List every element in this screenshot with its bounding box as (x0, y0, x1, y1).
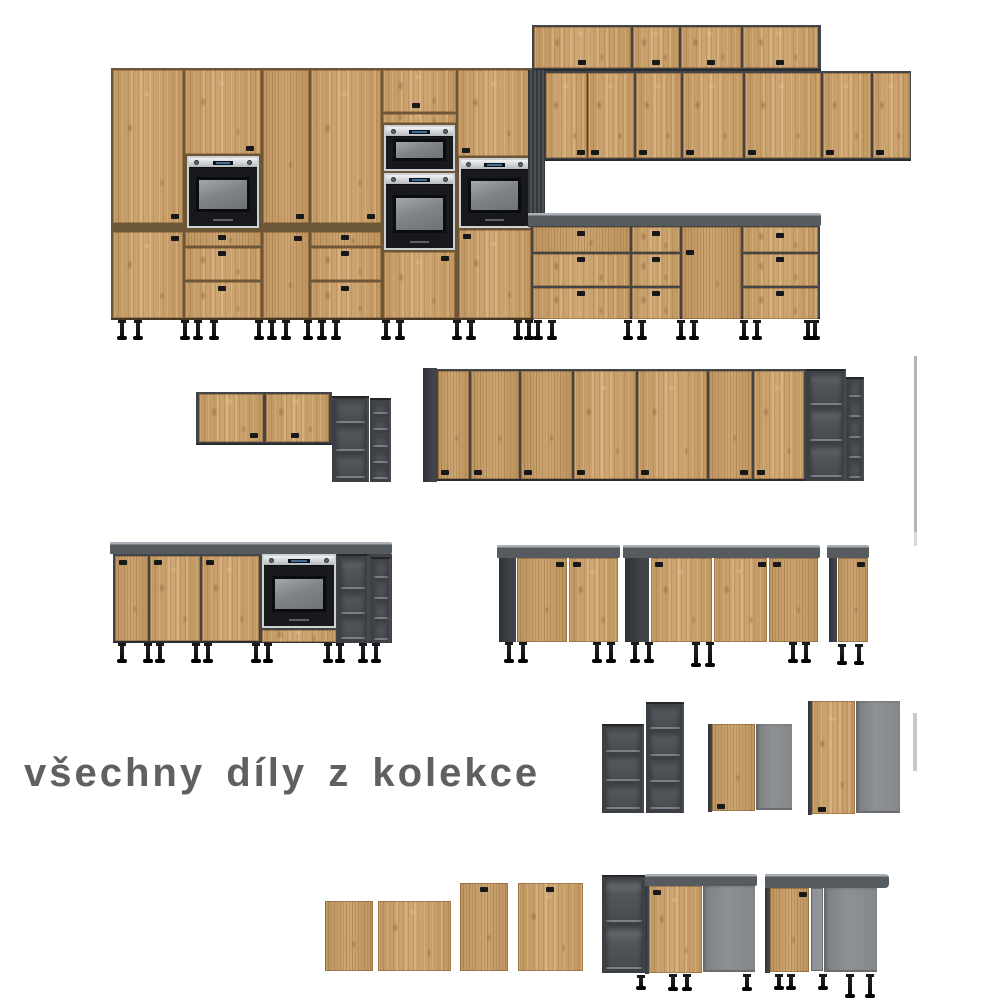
oven-knob (391, 177, 396, 182)
cabinet-leg (685, 974, 689, 988)
cabinet-leg (745, 974, 749, 988)
oven-knob (518, 162, 523, 167)
door-handle (591, 150, 599, 155)
wall-cabinet-door (588, 73, 634, 158)
oven-brand-mark (485, 219, 504, 221)
cabinet-leg (626, 320, 630, 337)
countertop (497, 545, 620, 558)
shelf-compartment (606, 785, 640, 809)
door-handle (857, 562, 865, 567)
cabinet-leg (595, 642, 599, 660)
drawer-handle (577, 291, 585, 296)
cabinet-leg (254, 643, 258, 660)
cabinet-leg (374, 643, 378, 660)
door-front-panel (378, 901, 451, 971)
built-in-oven (459, 158, 530, 228)
cabinet-leg (212, 320, 216, 337)
door-handle (577, 470, 585, 475)
cabinet-leg (196, 320, 200, 337)
shelf-compartment (810, 445, 842, 477)
door-handle (655, 562, 663, 567)
wall-cabinet-door (471, 371, 519, 479)
tall-cabinet-door (458, 70, 531, 156)
countertop (528, 213, 821, 226)
cabinet-leg (813, 320, 817, 337)
countertop (827, 545, 869, 558)
built-in-oven (262, 554, 336, 628)
cabinet-leg (536, 320, 540, 337)
shelf-compartment (650, 706, 680, 729)
oven-glass-door (196, 177, 249, 212)
shelf-compartment (373, 417, 388, 430)
wall-cabinet-door (823, 73, 871, 158)
oven-housing-filler (383, 114, 456, 123)
door-handle (556, 562, 564, 567)
door-handle (799, 892, 807, 897)
tall-cabinet-lower-door (459, 230, 531, 318)
door-handle (412, 103, 420, 108)
door-handle (578, 60, 586, 65)
shelf-compartment (336, 427, 365, 450)
cabinet-leg (609, 642, 613, 660)
shelf-compartment (849, 420, 861, 437)
wall-cabinet-door (873, 73, 910, 158)
shelf-compartment (341, 558, 365, 589)
corner-base-cabinet-body (824, 888, 877, 972)
cabinet-leg (361, 643, 365, 660)
door-handle (246, 146, 254, 151)
door-handle (757, 470, 765, 475)
door-handle (171, 236, 179, 241)
cabinet-leg (647, 642, 651, 660)
cabinet-leg (791, 642, 795, 660)
countertop (765, 874, 889, 888)
base-cabinet-door (838, 558, 868, 642)
cabinet-leg (136, 320, 140, 337)
door-handle (524, 470, 532, 475)
door-handle (707, 60, 715, 65)
cabinet-leg (206, 643, 210, 660)
open-shelf-unit (602, 724, 644, 813)
corner-cubby-unit (370, 398, 391, 482)
cropped-panel-edge (914, 356, 917, 532)
door-handle (773, 562, 781, 567)
oven-display (409, 178, 430, 182)
wall-cabinet-door (745, 73, 821, 158)
cabinet-leg (306, 320, 310, 337)
oven-knob (391, 129, 396, 134)
open-shelf-unit (806, 369, 846, 481)
oven-display (484, 163, 505, 167)
tall-cabinet-lower-door (263, 232, 309, 318)
corner-wall-cabinet-door (712, 724, 755, 811)
cabinet-leg (516, 320, 520, 337)
door-handle (826, 150, 834, 155)
drawer-handle (652, 231, 660, 236)
corner-cubby-unit (846, 377, 864, 481)
shelf-compartment (373, 401, 388, 414)
drawer-front (743, 227, 818, 252)
cropped-panel-edge (914, 532, 917, 546)
oven-control-panel (461, 160, 528, 170)
oven-knob (443, 129, 448, 134)
built-in-oven (384, 173, 455, 250)
cabinet-leg (521, 642, 525, 660)
cabinet-leg (806, 320, 810, 337)
base-cabinet-door (517, 558, 567, 642)
cabinet-leg (334, 320, 338, 337)
oven-knob (194, 160, 199, 165)
cabinet-leg (671, 974, 675, 988)
door-handle (296, 214, 304, 219)
door-handle (740, 470, 748, 475)
door-handle (686, 250, 694, 255)
shelf-compartment (810, 373, 842, 405)
tall-cabinet-door (311, 70, 381, 223)
built-in-oven (187, 156, 259, 228)
wall-cabinet-door (438, 371, 469, 479)
door-handle (463, 234, 471, 239)
base-cabinet-door (651, 558, 712, 642)
caption-text: všechny díly z kolekce (24, 751, 540, 796)
door-handle (441, 470, 449, 475)
door-handle (474, 470, 482, 475)
door-front-panel (325, 901, 373, 971)
door-handle (171, 214, 179, 219)
shelf-compartment (849, 400, 861, 417)
wall-cabinet-door (709, 371, 752, 479)
base-cabinet-side-panel (625, 558, 649, 642)
cabinet-leg (120, 643, 124, 660)
oven-control-panel (264, 556, 334, 566)
tall-cabinet-door (263, 70, 309, 223)
cabinet-leg (194, 643, 198, 660)
shelf-compartment (374, 622, 388, 640)
oven-knob (324, 558, 329, 563)
oven-knob (247, 160, 252, 165)
oven-knob (269, 558, 274, 563)
cabinet-leg (270, 320, 274, 337)
wall-cabinet-side-panel (528, 70, 545, 227)
cabinet-leg (120, 320, 124, 337)
drawer-handle (776, 233, 784, 238)
shelf-compartment (650, 733, 680, 756)
countertop (645, 874, 757, 886)
cabinet-leg (183, 320, 187, 337)
drawer-handle (341, 235, 349, 240)
cabinet-leg (320, 320, 324, 337)
door-handle (573, 562, 581, 567)
cabinet-leg (708, 642, 712, 664)
door-handle (758, 562, 766, 567)
cabinet-leg (633, 642, 637, 660)
base-cabinet-side-panel (499, 558, 516, 642)
corner-base-blind-panel (703, 886, 755, 972)
shelf-compartment (341, 618, 365, 639)
shelf-compartment (849, 441, 861, 458)
drawer-handle (577, 231, 585, 236)
shelf-compartment (606, 728, 640, 752)
drawer-handle (776, 291, 784, 296)
oven-unit-drawer-front (262, 630, 336, 642)
wall-cabinet-door (546, 73, 587, 158)
cabinet-leg (694, 642, 698, 664)
cabinet-leg (527, 320, 531, 337)
door-handle (462, 148, 470, 153)
cabinet-leg (384, 320, 388, 337)
oven-glass-door (393, 139, 445, 161)
open-shelf-unit (337, 554, 369, 643)
wall-cabinet-door (574, 371, 636, 479)
door-handle (367, 214, 375, 219)
oven-glass-door (272, 576, 327, 612)
shelf-compartment (374, 581, 388, 599)
cabinet-leg (455, 320, 459, 337)
drawer-handle (652, 257, 660, 262)
drawer-handle (218, 235, 226, 240)
shelf-compartment (849, 380, 861, 397)
oven-brand-mark (410, 241, 429, 243)
cabinet-leg (266, 643, 270, 660)
built-in-compact-oven (384, 125, 455, 171)
cabinet-leg (146, 643, 150, 660)
wall-cabinet-door (636, 73, 681, 158)
shelf-compartment (373, 450, 388, 463)
cabinet-leg (257, 320, 261, 337)
door-handle (818, 807, 826, 812)
oven-housing-bottom-door (384, 252, 455, 318)
shelf-compartment (650, 760, 680, 783)
corner-wall-cabinet-panel (856, 701, 900, 813)
door-handle (291, 433, 299, 438)
shelf-compartment (373, 466, 388, 479)
drawer-handle (341, 286, 349, 291)
base-cabinet-door (682, 227, 741, 319)
cabinet-leg (804, 642, 808, 660)
tall-cabinet-door (185, 70, 261, 154)
cabinet-leg (777, 974, 781, 987)
base-cabinet-side-panel (829, 558, 837, 642)
oven-control-panel (386, 175, 453, 185)
door-handle (250, 433, 258, 438)
cabinet-leg (692, 320, 696, 337)
cabinet-leg (868, 974, 872, 995)
open-shelf-unit (602, 875, 646, 973)
base-cabinet-door (150, 556, 200, 641)
corner-base-cabinet-door (649, 886, 702, 973)
shelf-compartment (336, 400, 365, 423)
cabinet-leg (398, 320, 402, 337)
wall-cabinet-door (754, 371, 804, 479)
door-front-panel (518, 883, 583, 971)
shelf-compartment (336, 455, 365, 478)
countertop (110, 542, 392, 554)
door-handle (206, 560, 214, 565)
cabinet-leg (679, 320, 683, 337)
door-handle (653, 890, 661, 895)
corner-base-gray-door (811, 888, 823, 971)
open-shelf-unit (646, 702, 684, 813)
drawer-handle (652, 291, 660, 296)
door-handle (154, 560, 162, 565)
shelf-compartment (606, 926, 642, 969)
cabinet-leg (848, 974, 852, 995)
drawer-handle (218, 286, 226, 291)
wall-cabinet-door (521, 371, 572, 479)
drawer-handle (577, 257, 585, 262)
oven-brand-mark (289, 619, 309, 621)
cabinet-leg (857, 644, 861, 662)
oven-glass-door (393, 195, 445, 233)
open-shelf-unit (332, 396, 369, 482)
oven-control-panel (386, 127, 453, 137)
cabinet-leg (550, 320, 554, 337)
door-handle (776, 60, 784, 65)
door-front-panel (460, 883, 508, 971)
cabinet-leg (158, 643, 162, 660)
drawer-handle (218, 251, 226, 256)
corner-base-cabinet-door (770, 888, 809, 972)
cabinet-leg (639, 975, 643, 987)
cabinet-leg (840, 644, 844, 662)
oven-display (409, 130, 430, 134)
door-handle (717, 804, 725, 809)
drawer-handle (776, 257, 784, 262)
base-cabinet-door (569, 558, 618, 642)
corner-wall-cabinet-panel (756, 724, 792, 810)
cabinet-leg (640, 320, 644, 337)
cabinet-leg (284, 320, 288, 337)
base-cabinet-door (115, 556, 148, 641)
shelf-compartment (650, 786, 680, 809)
cabinet-leg (789, 974, 793, 987)
cabinet-leg (821, 974, 825, 987)
oven-knob (443, 177, 448, 182)
cabinet-leg (338, 643, 342, 660)
base-cabinet-door (769, 558, 818, 642)
door-handle (546, 887, 554, 892)
oven-display (288, 559, 310, 563)
door-handle (686, 150, 694, 155)
corner-wall-cabinet-door (812, 701, 855, 814)
wall-cabinet-door (638, 371, 707, 479)
shelf-compartment (373, 433, 388, 446)
tall-cabinet-door (113, 70, 183, 223)
oven-control-panel (189, 158, 257, 168)
door-handle (119, 560, 127, 565)
shelf-compartment (374, 560, 388, 578)
door-handle (876, 150, 884, 155)
cabinet-leg (742, 320, 746, 337)
oven-glass-door (468, 178, 520, 212)
door-handle (294, 236, 302, 241)
door-handle (652, 60, 660, 65)
door-handle (577, 150, 585, 155)
door-handle (748, 150, 756, 155)
oven-brand-mark (213, 219, 232, 221)
cabinet-leg (469, 320, 473, 337)
shelf-compartment (606, 879, 642, 922)
cropped-panel-edge (913, 713, 917, 771)
corner-cubby-unit (371, 557, 391, 643)
oven-display (213, 161, 234, 165)
shelf-compartment (810, 409, 842, 441)
cabinet-leg (326, 643, 330, 660)
shelf-compartment (374, 602, 388, 620)
wall-cabinet-door (683, 73, 743, 158)
base-cabinet-door (714, 558, 767, 642)
countertop (623, 545, 820, 558)
wall-cabinet-side-panel (423, 368, 437, 482)
tall-cabinet-lower-door (113, 232, 183, 318)
door-handle (441, 256, 449, 261)
cabinet-leg (507, 642, 511, 660)
oven-knob (466, 162, 471, 167)
shelf-compartment (606, 756, 640, 780)
shelf-compartment (849, 461, 861, 478)
door-handle (639, 150, 647, 155)
door-handle (480, 887, 488, 892)
product-collage-kitchen-collection: všechny díly z kolekce (0, 0, 1000, 1000)
base-cabinet-door (202, 556, 259, 641)
drawer-handle (341, 251, 349, 256)
door-handle (641, 470, 649, 475)
shelf-compartment (341, 593, 365, 614)
cabinet-leg (755, 320, 759, 337)
